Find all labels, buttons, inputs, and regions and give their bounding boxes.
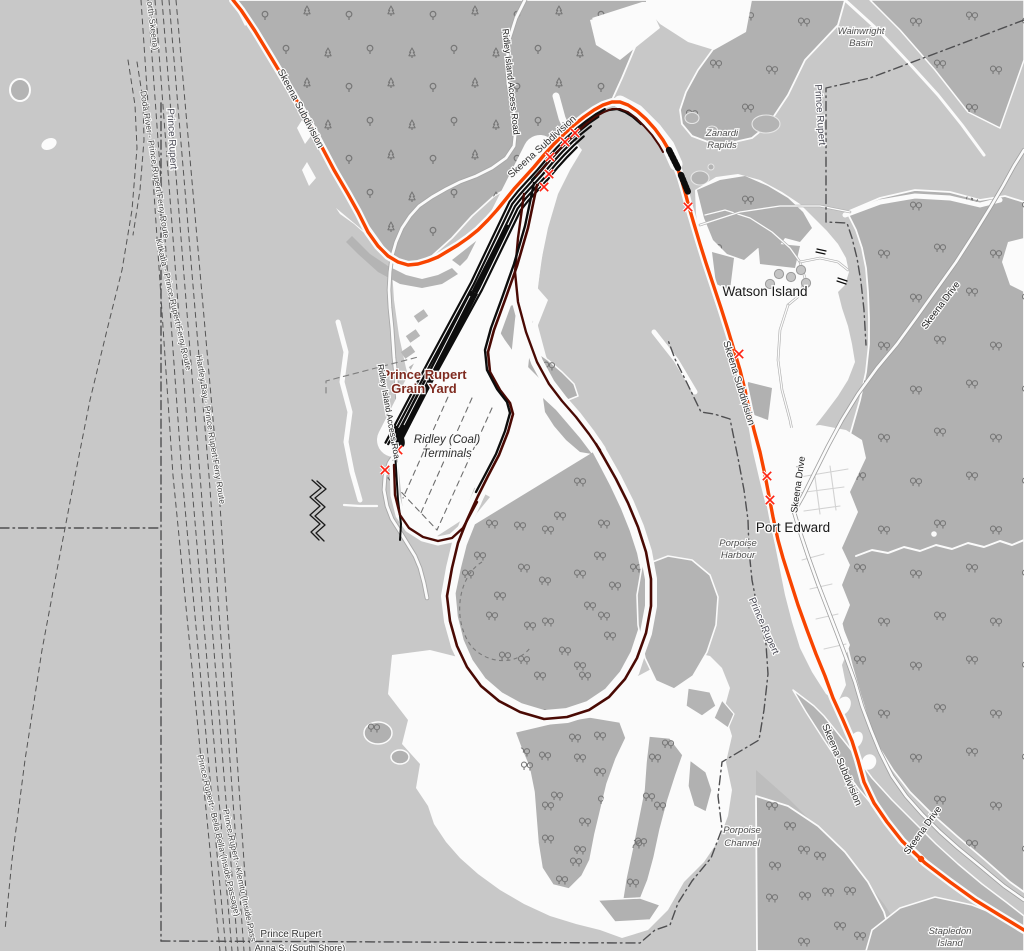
svg-text:Basin: Basin: [849, 38, 873, 49]
svg-text:Ridley (Coal): Ridley (Coal): [414, 434, 481, 446]
svg-text:Channel: Channel: [724, 838, 760, 849]
svg-text:Anna S. (South Shore): Anna S. (South Shore): [255, 943, 346, 951]
svg-text:Terminals: Terminals: [422, 448, 472, 460]
svg-text:Port Edward: Port Edward: [756, 520, 830, 535]
svg-text:Prince Rupert: Prince Rupert: [260, 929, 321, 940]
svg-text:Harbour: Harbour: [721, 550, 756, 561]
svg-text:Zanardi: Zanardi: [705, 128, 739, 139]
svg-text:Rapids: Rapids: [707, 140, 737, 151]
svg-text:Prince Rupert: Prince Rupert: [381, 367, 467, 382]
svg-text:Grain Yard: Grain Yard: [391, 381, 457, 396]
svg-text:Stapledon: Stapledon: [929, 926, 972, 937]
svg-text:Porpoise: Porpoise: [719, 538, 757, 549]
svg-text:Watson Island: Watson Island: [722, 284, 807, 299]
svg-text:Wainwright: Wainwright: [838, 26, 885, 37]
svg-text:Porpoise: Porpoise: [723, 825, 761, 836]
svg-text:Island: Island: [937, 938, 963, 949]
